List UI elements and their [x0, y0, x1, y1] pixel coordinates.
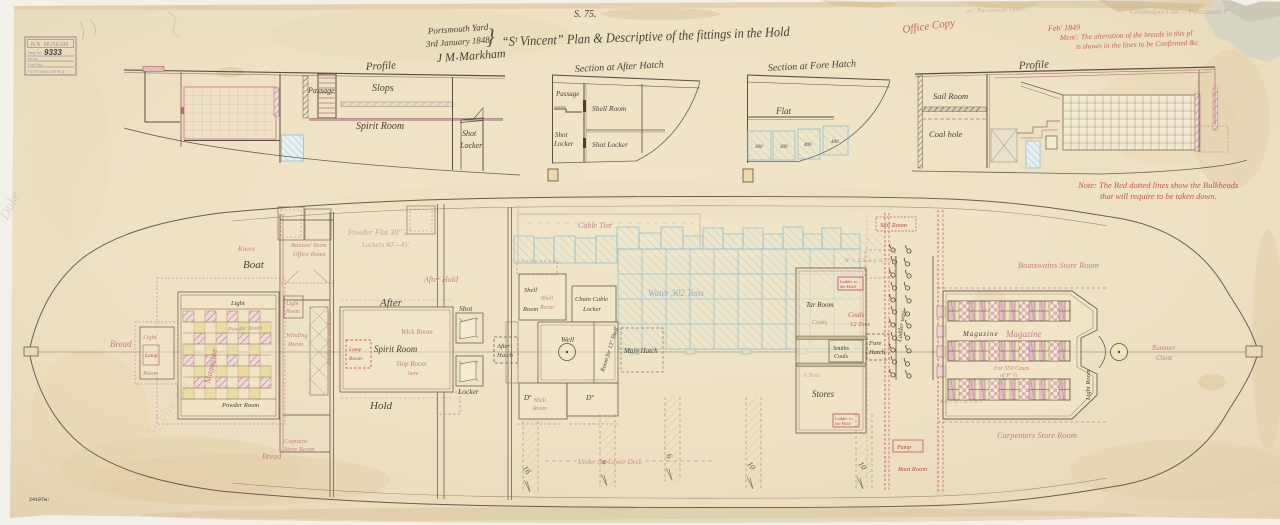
svg-text:Spirit Room: Spirit Room	[374, 344, 418, 354]
svg-text:Tar Room: Tar Room	[806, 301, 834, 309]
svg-text:Light: Light	[285, 301, 299, 307]
svg-text:Port Folio: Port Folio	[28, 63, 43, 67]
svg-text:For 550 Cases: For 550 Cases	[993, 366, 1030, 372]
svg-text:Sail Room: Sail Room	[933, 91, 968, 101]
svg-text:Shot: Shot	[459, 304, 473, 313]
svg-text:12 Tons: 12 Tons	[850, 321, 871, 328]
svg-text:Coals: Coals	[812, 319, 828, 326]
svg-text:Passage: Passage	[555, 90, 579, 98]
svg-text:Water 302 Tons: Water 302 Tons	[648, 288, 704, 298]
svg-text:Boat Room: Boat Room	[898, 466, 927, 473]
svg-text:Shot: Shot	[555, 131, 569, 139]
svg-text:Room: Room	[142, 370, 158, 377]
svg-text:Locker: Locker	[553, 140, 574, 148]
svg-text:400: 400	[831, 140, 839, 145]
svg-text:Store Room: Store Room	[284, 446, 315, 453]
svg-text:Office Room: Office Room	[293, 251, 326, 258]
svg-text:Slops: Slops	[372, 83, 394, 94]
svg-text:Shell: Shell	[541, 296, 553, 302]
svg-text:Boat: Boat	[243, 259, 265, 271]
svg-text:Slop Room: Slop Room	[396, 360, 427, 368]
svg-text:Main Hatch: Main Hatch	[623, 347, 658, 355]
svg-text:Magazine: Magazine	[1005, 329, 1042, 339]
svg-text:Spirit Room: Spirit Room	[356, 121, 404, 132]
svg-text:Room: Room	[285, 309, 301, 315]
svg-text:Magazine: Magazine	[962, 330, 999, 338]
svg-text:Captains: Captains	[284, 438, 308, 445]
svg-text:Room: Room	[532, 406, 548, 412]
svg-text:Light: Light	[142, 334, 157, 341]
svg-text:Rummer: Rummer	[1151, 344, 1176, 352]
svg-text:Note: The Red dotted lines sho: Note: The Red dotted lines show the Bulk…	[1077, 180, 1239, 190]
svg-text:Commodore’s list — Portsmouth: Commodore’s list — Portsmouth Yʹ	[1130, 8, 1229, 16]
svg-text:Well: Well	[561, 335, 574, 344]
svg-text:300: 300	[755, 145, 763, 150]
svg-text:Under the Lower Deck: Under the Lower Deck	[578, 458, 643, 466]
svg-text:Coals: Coals	[834, 354, 849, 360]
svg-text:Shot Locker: Shot Locker	[592, 140, 628, 149]
svg-text:Shell Room: Shell Room	[592, 104, 627, 113]
svg-text:Light Room: Light Room	[1085, 369, 1092, 401]
svg-text:Powder Room: Powder Room	[221, 402, 259, 409]
svg-text:Locker: Locker	[582, 306, 602, 313]
svg-text:400: 400	[804, 143, 812, 148]
svg-text:Locker: Locker	[457, 387, 479, 396]
svg-text:Smiths sink and Bread: Smiths sink and Bread	[327, 310, 333, 365]
svg-text:here: here	[408, 371, 419, 377]
svg-text:24197w:: 24197w:	[29, 497, 50, 503]
svg-text:Light: Light	[230, 300, 245, 307]
svg-text:PORTSMOUTH R.N.: PORTSMOUTH R.N.	[28, 69, 65, 74]
svg-text:of Pʹ ⅔: of Pʹ ⅔	[1000, 372, 1018, 379]
svg-text:Cable Tier: Cable Tier	[578, 221, 613, 230]
svg-text:that will require to be taken: that will require to be taken down.	[1100, 191, 1217, 201]
svg-text:9333: 9333	[44, 48, 62, 57]
svg-text:Smiths: Smiths	[833, 346, 850, 352]
svg-text:Winding: Winding	[286, 332, 308, 339]
svg-text:S. 75.: S. 75.	[574, 9, 597, 20]
svg-text:}: }	[486, 24, 495, 49]
svg-text:Flat: Flat	[775, 106, 791, 116]
svg-text:Nº 1. 2. 3. 4. 5. 6. 7. 8: Nº 1. 2. 3. 4. 5. 6. 7. 8	[844, 257, 893, 264]
svg-text:Dº: Dº	[523, 394, 532, 402]
svg-text:Lockers 40′—45′: Lockers 40′—45′	[361, 241, 410, 249]
svg-text:Room: Room	[522, 306, 538, 313]
svg-text:Hatch: Hatch	[496, 352, 513, 359]
svg-text:Stores: Stores	[812, 389, 835, 399]
svg-text:Sail Room: Sail Room	[880, 222, 907, 229]
svg-text:Carpenters Store Room: Carpenters Store Room	[997, 430, 1077, 440]
svg-text:Coal hole: Coal hole	[929, 129, 963, 139]
svg-text:Room: Room	[348, 356, 362, 362]
svg-text:6 Tons: 6 Tons	[804, 373, 820, 379]
svg-text:Chest: Chest	[1156, 354, 1173, 362]
svg-text:Pump: Pump	[896, 445, 911, 451]
svg-text:Bread: Bread	[110, 339, 132, 349]
svg-text:arr.no.: arr.no.	[28, 57, 38, 61]
svg-text:Hold: Hold	[369, 400, 393, 412]
svg-text:Shell: Shell	[524, 287, 537, 294]
svg-text:300: 300	[780, 145, 788, 150]
svg-text:Lamp: Lamp	[348, 347, 362, 353]
svg-text:Shell: Shell	[534, 398, 546, 404]
svg-text:Powder Flat 30′′ 2″: Powder Flat 30′′ 2″	[347, 228, 412, 237]
svg-text:Neg No.: Neg No.	[28, 50, 43, 55]
svg-text:the Hold: the Hold	[835, 421, 851, 426]
svg-text:Boatswains Store Room: Boatswains Store Room	[1018, 260, 1099, 270]
svg-text:Room: Room	[539, 305, 555, 311]
svg-text:Lamp: Lamp	[144, 353, 158, 359]
svg-text:Bread: Bread	[262, 452, 282, 461]
svg-text:Profile: Profile	[1018, 58, 1050, 72]
svg-text:Passage: Passage	[307, 86, 335, 95]
svg-text:Fore: Fore	[868, 340, 882, 347]
svg-text:Boatswʹ Store: Boatswʹ Store	[291, 242, 327, 249]
svg-text:Chain Cable: Chain Cable	[575, 296, 608, 303]
svg-text:Locker: Locker	[459, 141, 483, 150]
svg-text:Dº: Dº	[585, 393, 594, 402]
svg-text:Coals: Coals	[848, 311, 865, 319]
svg-text:Room: Room	[287, 341, 303, 348]
svg-text:Wick Room: Wick Room	[401, 328, 433, 336]
svg-text:Knees: Knees	[237, 245, 255, 253]
svg-text:After Hold: After Hold	[423, 275, 459, 284]
svg-text:Hatch: Hatch	[868, 349, 885, 356]
svg-text:the Hold: the Hold	[840, 284, 856, 289]
svg-text:Profile: Profile	[365, 59, 397, 73]
svg-text:Shot: Shot	[462, 129, 477, 138]
